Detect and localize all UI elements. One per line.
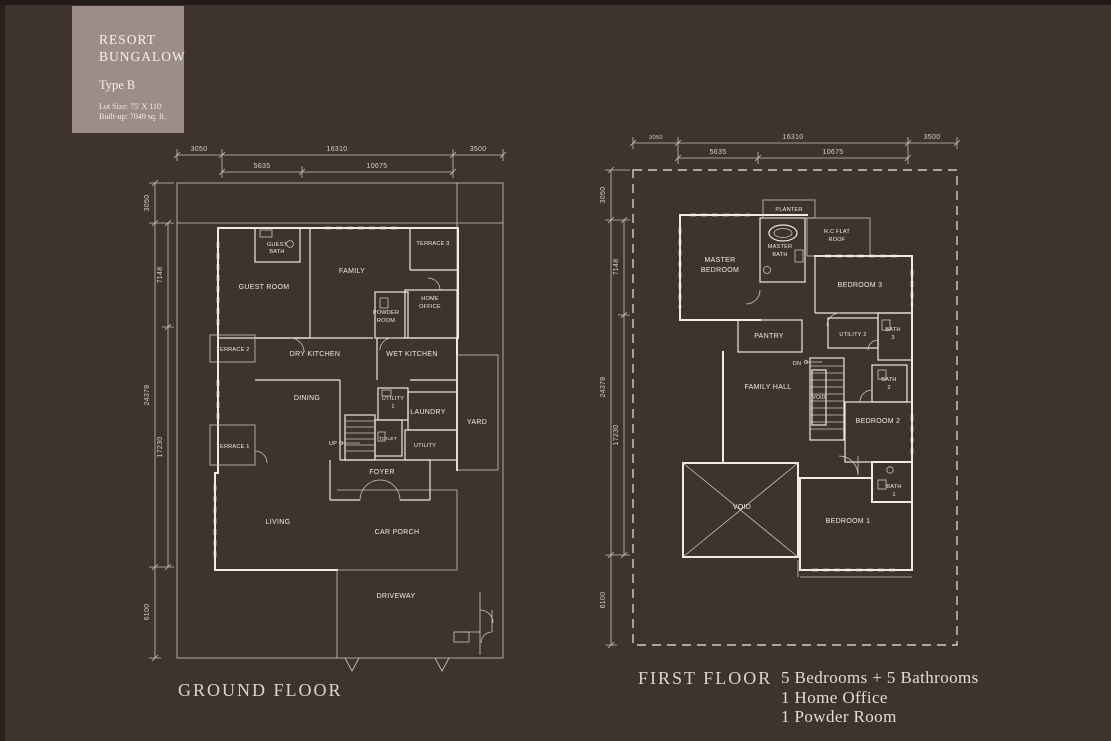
dim-label: 16310: [327, 146, 348, 153]
room-label-master-bath: MASTER: [768, 244, 793, 250]
room-label-car-porch: CAR PORCH: [375, 529, 420, 536]
room-label-guest-room: GUEST ROOM: [239, 284, 290, 291]
room-label-bedroom1: BEDROOM 1: [826, 518, 871, 525]
plan-title-line2: BUNGALOW: [99, 48, 176, 65]
dim-label: 6100: [600, 592, 607, 609]
room-label-family-hall: FAMILY HALL: [744, 384, 791, 391]
room-label-bath3: 3: [891, 335, 894, 341]
floor-plan-sheet: RESORT BUNGALOW Type B Lot Size: 75' X 1…: [0, 0, 1111, 741]
first-fixtures: [764, 225, 894, 489]
dim-label: 16310: [783, 134, 804, 141]
room-label-bath1: BATH: [886, 484, 901, 490]
dim-label: 17230: [613, 425, 620, 446]
first-property-boundary: [633, 170, 957, 645]
room-label-utility2: UTILITY 2: [839, 332, 866, 338]
first-dimensions-left: 3050 7148 24378 17230 6100: [600, 167, 630, 648]
room-label-utility: UTILITY: [414, 443, 436, 449]
first-floor-label: FIRST FLOOR: [638, 668, 772, 689]
dim-label: 10675: [367, 163, 388, 170]
room-label-powder-room: ROOM: [377, 318, 395, 324]
room-label-void: VOID: [733, 504, 751, 511]
room-label-bath2: 2: [887, 385, 890, 391]
room-label-bath2: BATH: [881, 377, 896, 383]
summary-line-bedrooms: 5 Bedrooms + 5 Bathrooms: [781, 668, 979, 688]
dim-label: 5635: [254, 163, 271, 170]
room-label-wet-kitchen: WET KITCHEN: [386, 351, 437, 358]
dim-label: 3050: [144, 195, 151, 212]
room-label-living: LIVING: [266, 519, 291, 526]
room-label-yard: YARD: [467, 419, 487, 426]
room-label-bath1: 1: [892, 492, 895, 498]
first-dimensions-top: 3050 16310 3500 5635 10675: [630, 134, 960, 164]
room-label-bath3: BATH: [885, 327, 900, 333]
room-label-up: UP: [329, 441, 337, 447]
room-label-utility1: UTILITY: [382, 396, 404, 402]
lot-size: Lot Size: 75' X 110': [99, 102, 176, 112]
dim-label: 7148: [613, 259, 620, 276]
room-label-pantry: PANTRY: [754, 333, 784, 340]
room-label-driveway: DRIVEWAY: [377, 593, 416, 600]
room-label-utility1: 1: [391, 404, 394, 410]
ground-doors: [255, 278, 440, 500]
summary-text: 5 Bedrooms + 5 Bathrooms 1 Home Office 1…: [781, 668, 979, 727]
ground-dimensions-top: 3050 16310 3500 5635 10675: [174, 146, 506, 178]
dim-label: 3500: [924, 134, 941, 141]
room-label-planter: PLANTER: [775, 207, 802, 213]
room-label-terrace3: TERRACE 3: [416, 241, 449, 247]
plan-type: Type B: [99, 78, 176, 93]
dim-label: 24378: [600, 377, 607, 398]
dim-label: 24378: [144, 385, 151, 406]
dim-label: 10675: [823, 149, 844, 156]
room-label-guest-bath: BATH: [269, 249, 284, 255]
dim-label: 3050: [191, 146, 208, 153]
room-label-home-office: OFFICE: [419, 304, 441, 310]
room-label-master-bedroom: BEDROOM: [701, 267, 739, 274]
room-label-bedroom3: BEDROOM 3: [838, 282, 883, 289]
room-label-rc-flat-roof: ROOF: [829, 237, 846, 243]
dim-label: 3500: [470, 146, 487, 153]
summary-line-home-office: 1 Home Office: [781, 688, 979, 708]
room-label-rc-flat-roof: R.C FLAT: [824, 229, 850, 235]
room-label-dn: DN: [793, 361, 801, 367]
summary-line-powder-room: 1 Powder Room: [781, 707, 979, 727]
room-label-family: FAMILY: [339, 268, 365, 275]
room-label-bedroom2: BEDROOM 2: [856, 418, 901, 425]
room-label-master-bedroom: MASTER: [705, 257, 736, 264]
ground-windows: [215, 228, 400, 558]
ground-stairs: [339, 415, 375, 460]
room-label-dining: DINING: [294, 395, 320, 402]
room-label-toilet: TOILET: [379, 436, 397, 442]
ground-floor-plan: 3050 16310 3500 5635 10675 3050 7148 243…: [140, 140, 520, 680]
room-label-foyer: FOYER: [369, 469, 395, 476]
dim-label: 7148: [157, 267, 164, 284]
plan-title-line1: RESORT: [99, 31, 176, 48]
room-label-terrace1: TERRACE 1: [216, 444, 249, 450]
dim-label: 3050: [649, 135, 663, 141]
room-label-dry-kitchen: DRY KITCHEN: [290, 351, 341, 358]
first-floor-plan: 3050 16310 3500 5635 10675 3050 7148 243…: [590, 130, 980, 670]
dim-label: 5635: [710, 149, 727, 156]
ground-walls: [210, 228, 498, 671]
dim-label: 17230: [157, 437, 164, 458]
room-label-guest-bath: GUEST: [267, 242, 288, 248]
built-up: Built-up: 7049 sq. ft.: [99, 112, 176, 122]
ground-floor-label: GROUND FLOOR: [178, 680, 343, 701]
room-label-powder-room: POWDER: [373, 310, 399, 316]
room-label-home-office: HOME: [421, 296, 439, 302]
dim-label: 6100: [144, 604, 151, 621]
room-label-terrace2: TERRACE 2: [216, 347, 249, 353]
room-label-master-bath: BATH: [772, 252, 787, 258]
room-label-void-stair: VOID: [812, 395, 825, 401]
ground-dimensions-left: 3050 7148 24378 17230 6100: [144, 180, 174, 661]
title-card: RESORT BUNGALOW Type B Lot Size: 75' X 1…: [72, 6, 184, 133]
room-label-laundry: LAUNDRY: [410, 409, 445, 416]
dim-label: 3050: [600, 187, 607, 204]
